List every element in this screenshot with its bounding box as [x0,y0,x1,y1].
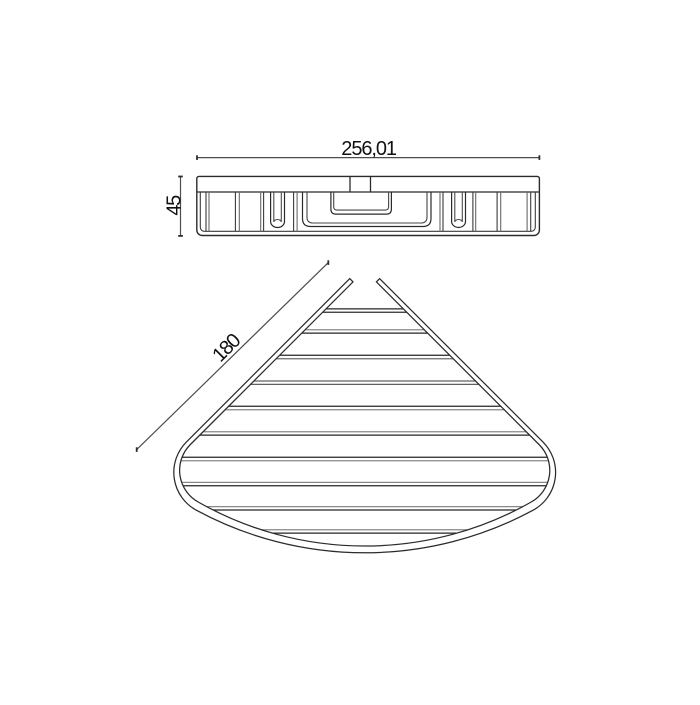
svg-text:256,01: 256,01 [341,138,397,160]
svg-text:45: 45 [163,195,185,216]
